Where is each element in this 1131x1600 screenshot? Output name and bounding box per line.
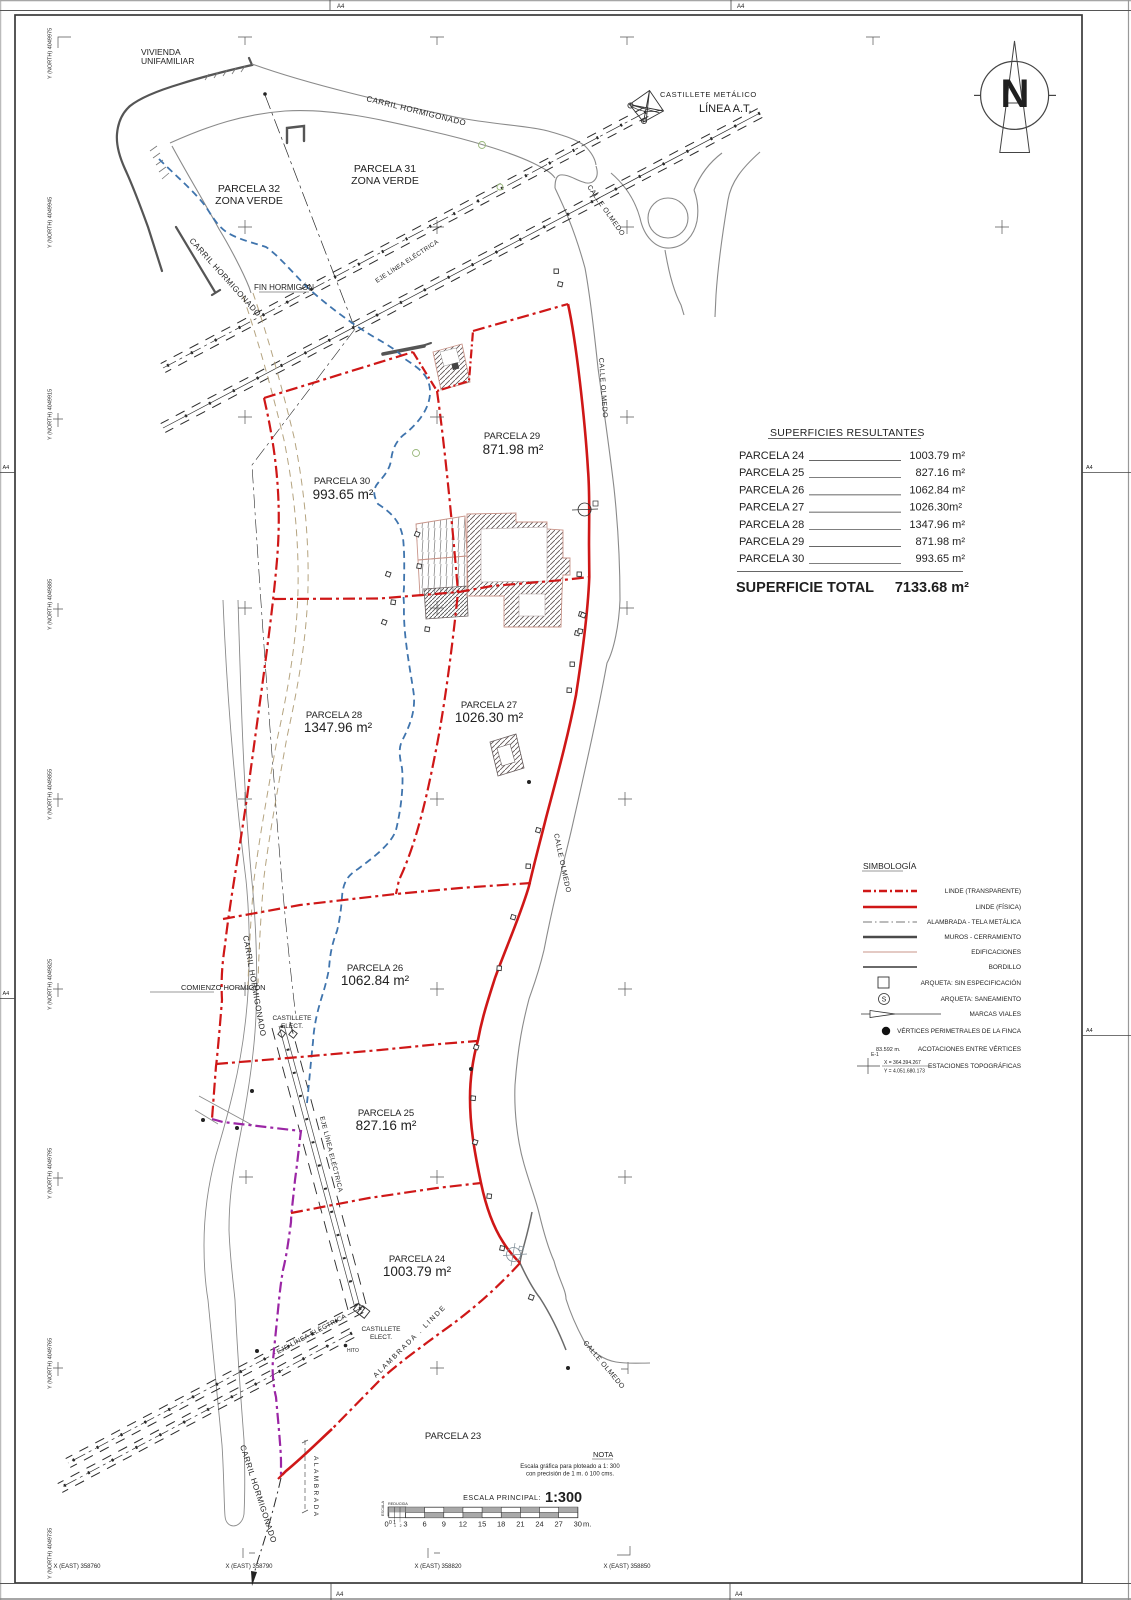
svg-text:X (EAST) 358790: X (EAST) 358790 bbox=[225, 1564, 273, 1570]
svg-text:2: 2 bbox=[400, 1524, 402, 1528]
svg-text:Y (NORTH) 4049795: Y (NORTH) 4049795 bbox=[48, 1148, 54, 1199]
svg-text:VÉRTICES PERIMETRALES DE LA FI: VÉRTICES PERIMETRALES DE LA FINCA bbox=[897, 1026, 1022, 1035]
svg-text:E-1: E-1 bbox=[871, 1052, 879, 1058]
svg-text:EDIFICACIONES: EDIFICACIONES bbox=[971, 949, 1021, 956]
svg-text:Y (NORTH) 4049975: Y (NORTH) 4049975 bbox=[48, 28, 54, 79]
svg-text:ARQUETA: SANEAMIENTO: ARQUETA: SANEAMIENTO bbox=[941, 996, 1021, 1003]
svg-text:827.16 m²: 827.16 m² bbox=[915, 467, 965, 479]
svg-text:X (EAST) 358820: X (EAST) 358820 bbox=[414, 1564, 462, 1570]
svg-text:7133.68 m²: 7133.68 m² bbox=[895, 580, 969, 596]
svg-text:con precisión de 1 m. ó 100 cm: con precisión de 1 m. ó 100 cms. bbox=[526, 1472, 614, 1478]
svg-text:LÍNEA A.T.: LÍNEA A.T. bbox=[699, 102, 752, 115]
svg-text:ELECT.: ELECT. bbox=[281, 1023, 303, 1030]
svg-text:PARCELA 28: PARCELA 28 bbox=[739, 519, 804, 531]
svg-text:A4: A4 bbox=[337, 4, 345, 10]
svg-text:Y (NORTH) 4049885: Y (NORTH) 4049885 bbox=[48, 579, 54, 630]
svg-text:Escala gráfica para ploteado a: Escala gráfica para ploteado a 1: 300 bbox=[520, 1464, 620, 1470]
svg-text:PARCELA 29: PARCELA 29 bbox=[484, 431, 540, 442]
svg-text:3: 3 bbox=[403, 1520, 407, 1529]
svg-text:1026.30m²: 1026.30m² bbox=[909, 502, 962, 514]
svg-text:NOTA: NOTA bbox=[593, 1450, 613, 1459]
svg-text:871.98 m²: 871.98 m² bbox=[483, 442, 544, 457]
svg-text:871.98 m²: 871.98 m² bbox=[915, 536, 965, 548]
svg-text:A4: A4 bbox=[1086, 1028, 1093, 1034]
svg-text:PARCELA 29: PARCELA 29 bbox=[739, 536, 804, 548]
svg-text:18: 18 bbox=[497, 1520, 505, 1529]
svg-text:N: N bbox=[1001, 72, 1030, 116]
svg-text:X = 364.394.267: X = 364.394.267 bbox=[884, 1060, 921, 1066]
svg-text:ARQUETA: SIN ESPECIFICACIÓN: ARQUETA: SIN ESPECIFICACIÓN bbox=[921, 978, 1022, 987]
svg-text:827.16 m²: 827.16 m² bbox=[356, 1118, 417, 1133]
svg-text:Y (NORTH) 4049735: Y (NORTH) 4049735 bbox=[48, 1528, 54, 1579]
svg-text:1062.84 m²: 1062.84 m² bbox=[909, 484, 965, 496]
svg-text:30: 30 bbox=[574, 1520, 582, 1529]
svg-text:Y (NORTH) 4049855: Y (NORTH) 4049855 bbox=[48, 769, 54, 820]
svg-text:1003.79 m²: 1003.79 m² bbox=[383, 1264, 452, 1279]
svg-text:CASTILLETE: CASTILLETE bbox=[361, 1326, 401, 1333]
svg-text:A4: A4 bbox=[735, 1592, 743, 1598]
svg-text:Y = 4.051.680.173: Y = 4.051.680.173 bbox=[884, 1069, 925, 1075]
svg-text:21: 21 bbox=[516, 1520, 524, 1529]
svg-text:PARCELA 26: PARCELA 26 bbox=[739, 484, 804, 496]
svg-text:CASTILLETE: CASTILLETE bbox=[272, 1015, 312, 1022]
svg-text:1003.79 m²: 1003.79 m² bbox=[909, 450, 965, 462]
svg-text:REDUCIDA: REDUCIDA bbox=[388, 1502, 408, 1506]
svg-text:PARCELA 24: PARCELA 24 bbox=[739, 450, 804, 462]
svg-text:A4: A4 bbox=[3, 991, 10, 997]
svg-text:PARCELA 27: PARCELA 27 bbox=[739, 502, 804, 514]
svg-text:ACOTACIONES ENTRE VÉRTICES: ACOTACIONES ENTRE VÉRTICES bbox=[918, 1044, 1021, 1053]
svg-text:ZONA VERDE: ZONA VERDE bbox=[215, 195, 283, 207]
svg-text:FIN HORMIGÓN: FIN HORMIGÓN bbox=[254, 283, 314, 292]
svg-text:SIMBOLOGÍA: SIMBOLOGÍA bbox=[863, 861, 917, 871]
svg-text:ESCALA PRINCIPAL:: ESCALA PRINCIPAL: bbox=[463, 1493, 541, 1502]
svg-text:X (EAST) 358760: X (EAST) 358760 bbox=[53, 1564, 101, 1570]
svg-text:Y (NORTH) 4049915: Y (NORTH) 4049915 bbox=[48, 389, 54, 440]
svg-text:X (EAST) 358850: X (EAST) 358850 bbox=[603, 1564, 651, 1570]
svg-text:SUPERFICIE TOTAL: SUPERFICIE TOTAL bbox=[736, 580, 874, 596]
svg-text:993.65 m²: 993.65 m² bbox=[915, 553, 965, 565]
svg-text:1: 1 bbox=[394, 1524, 396, 1528]
svg-text:1347.96 m²: 1347.96 m² bbox=[304, 720, 373, 735]
svg-text:Y (NORTH) 4049945: Y (NORTH) 4049945 bbox=[48, 197, 54, 248]
svg-text:6: 6 bbox=[423, 1520, 427, 1529]
svg-text:CASTILLETE METÁLICO: CASTILLETE METÁLICO bbox=[660, 90, 757, 99]
svg-text:PARCELA 30: PARCELA 30 bbox=[739, 553, 804, 565]
svg-text:PARCELA 23: PARCELA 23 bbox=[425, 1431, 481, 1442]
svg-text:1:300: 1:300 bbox=[545, 1490, 582, 1506]
svg-text:Y (NORTH) 4049765: Y (NORTH) 4049765 bbox=[48, 1338, 54, 1389]
svg-text:24: 24 bbox=[535, 1520, 543, 1529]
svg-text:Y (NORTH) 4049825: Y (NORTH) 4049825 bbox=[48, 959, 54, 1010]
svg-text:PARCELA 31: PARCELA 31 bbox=[354, 163, 416, 175]
svg-text:15: 15 bbox=[478, 1520, 486, 1529]
svg-text:ELECT.: ELECT. bbox=[370, 1334, 392, 1341]
svg-text:12: 12 bbox=[459, 1520, 467, 1529]
svg-text:A4: A4 bbox=[1086, 465, 1093, 471]
svg-text:ESCALA: ESCALA bbox=[381, 1501, 385, 1516]
svg-text:A4: A4 bbox=[336, 1592, 344, 1598]
svg-text:A4: A4 bbox=[737, 4, 745, 10]
svg-text:PARCELA 25: PARCELA 25 bbox=[739, 467, 804, 479]
svg-text:9: 9 bbox=[442, 1520, 446, 1529]
svg-text:83.592 m.: 83.592 m. bbox=[876, 1047, 901, 1053]
svg-text:MARCAS VIALES: MARCAS VIALES bbox=[970, 1011, 1022, 1018]
svg-text:m.: m. bbox=[583, 1520, 591, 1529]
svg-text:ESTACIONES TOPOGRÁFICAS: ESTACIONES TOPOGRÁFICAS bbox=[928, 1061, 1021, 1070]
svg-text:PARCELA 32: PARCELA 32 bbox=[218, 183, 280, 195]
svg-text:S: S bbox=[882, 997, 887, 1004]
svg-text:MUROS - CERRAMIENTO: MUROS - CERRAMIENTO bbox=[944, 934, 1021, 941]
svg-text:LINDE (FÍSICA): LINDE (FÍSICA) bbox=[976, 902, 1021, 911]
svg-text:1026.30 m²: 1026.30 m² bbox=[455, 710, 524, 725]
svg-text:27: 27 bbox=[555, 1520, 563, 1529]
svg-text:0: 0 bbox=[385, 1520, 389, 1529]
svg-text:ZONA VERDE: ZONA VERDE bbox=[351, 175, 419, 187]
svg-text:1062.84 m²: 1062.84 m² bbox=[341, 973, 410, 988]
svg-text:A4: A4 bbox=[3, 465, 10, 471]
svg-text:UNIFAMILIAR: UNIFAMILIAR bbox=[141, 56, 194, 66]
svg-text:BORDILLO: BORDILLO bbox=[989, 964, 1021, 971]
svg-text:993.65 m²: 993.65 m² bbox=[313, 487, 374, 502]
svg-text:ALAMBRADA: ALAMBRADA bbox=[312, 1456, 319, 1519]
svg-text:ALAMBRADA - TELA METÁLICA: ALAMBRADA - TELA METÁLICA bbox=[927, 917, 1022, 926]
svg-text:HITO: HITO bbox=[347, 1348, 359, 1354]
svg-text:SUPERFICIES RESULTANTES: SUPERFICIES RESULTANTES bbox=[770, 427, 925, 439]
svg-text:PARCELA 30: PARCELA 30 bbox=[314, 476, 370, 487]
svg-text:LINDE (TRANSPARENTE): LINDE (TRANSPARENTE) bbox=[945, 888, 1021, 895]
svg-text:1347.96 m²: 1347.96 m² bbox=[909, 519, 965, 531]
